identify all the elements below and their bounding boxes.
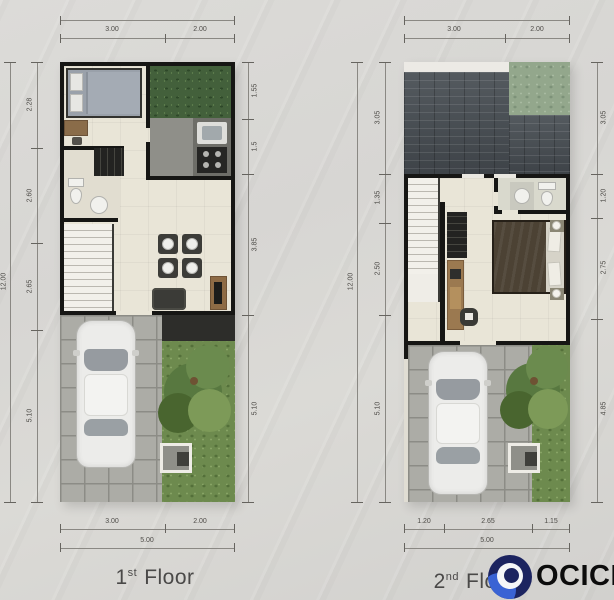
dim-line [404, 548, 570, 549]
dim-label: 12.00 [0, 265, 9, 299]
bed [66, 68, 142, 118]
dim-label: 2.00 [520, 25, 554, 34]
dim-line [10, 62, 11, 502]
dim-label: 5.10 [26, 399, 35, 433]
floorplan-image: 3.00 2.00 3.00 2.00 5.00 12.00 2.28 2.60… [0, 0, 614, 600]
garden-patch [150, 66, 231, 118]
bathroom-sink [90, 196, 108, 214]
dim-label: 2.00 [183, 25, 217, 34]
stair-rail [112, 224, 114, 311]
stairs [64, 224, 114, 311]
toilet-tank [538, 182, 556, 190]
dim-label: 5.10 [374, 392, 383, 426]
dim-line [60, 529, 235, 530]
caption-word: Floor [144, 566, 194, 589]
toilet-tank [68, 178, 84, 187]
tv-cabinet [210, 276, 227, 310]
desk-chair [72, 137, 82, 145]
dim-label: 2.00 [183, 517, 217, 526]
door-opening [502, 210, 518, 214]
dining-chair [182, 258, 202, 278]
desk-chair [460, 308, 478, 326]
dim-label: 12.00 [347, 265, 356, 299]
dim-label: 5.00 [470, 536, 504, 545]
dim-label: 2.65 [26, 270, 35, 304]
car [428, 351, 488, 495]
wardrobe [94, 148, 124, 176]
first-floor-plan [60, 62, 235, 502]
sofa [152, 288, 186, 310]
dim-label: 1.20 [407, 517, 441, 526]
dining-chair [158, 258, 178, 278]
dim-label: 3.85 [251, 228, 260, 262]
caption-suffix: nd [446, 571, 459, 583]
dim-label: 3.05 [600, 101, 609, 135]
second-floor-plan [404, 62, 570, 502]
dim-label: 1.5 [251, 130, 260, 164]
dim-label: 2.65 [471, 517, 505, 526]
stairs [408, 178, 440, 274]
wall [146, 142, 150, 180]
stove [197, 147, 227, 173]
window [462, 174, 484, 178]
dim-label: 3.00 [95, 25, 129, 34]
tree [158, 345, 231, 453]
nightstand [550, 220, 564, 232]
roof [404, 72, 509, 174]
dim-label: 1.20 [600, 179, 609, 213]
caption-suffix: st [128, 567, 138, 579]
dim-label: 4.85 [600, 392, 609, 426]
dim-label: 3.00 [437, 25, 471, 34]
dim-label: 3.00 [95, 517, 129, 526]
dim-label: 5.00 [130, 536, 164, 545]
dim-line [404, 529, 570, 530]
dim-line [60, 38, 235, 39]
dim-label: 2.28 [26, 88, 35, 122]
dim-label: 1.35 [374, 181, 383, 215]
wall [146, 66, 150, 128]
ocicio-logo-icon [488, 555, 532, 599]
dim-line [385, 62, 386, 502]
kitchen-sink [197, 122, 227, 144]
caption-number: 2 [434, 570, 446, 593]
roof [509, 115, 570, 174]
wall [440, 202, 445, 341]
dim-label: 3.05 [374, 101, 383, 135]
dining-chair [158, 234, 178, 254]
first-floor-caption: 1stFloor [100, 566, 210, 590]
dim-line [404, 20, 570, 21]
roof-edge [404, 62, 509, 72]
dim-line [248, 62, 249, 502]
dim-label: 2.75 [600, 251, 609, 285]
bathroom-sink [514, 188, 530, 204]
wall [64, 218, 118, 222]
tree [500, 347, 570, 452]
wall [494, 178, 498, 192]
dim-label: 1.55 [251, 74, 260, 108]
side-shadow [162, 315, 235, 341]
dining-chair [182, 234, 202, 254]
desk [64, 120, 88, 136]
dim-label: 1.15 [534, 517, 568, 526]
dim-label: 5.10 [251, 392, 260, 426]
watermark-text: OCICIO [536, 560, 614, 593]
wall [150, 176, 231, 180]
dim-line [404, 38, 570, 39]
dim-line [597, 62, 598, 502]
caption-number: 1 [115, 566, 127, 589]
nightstand [550, 288, 564, 300]
dim-line [357, 62, 358, 502]
dim-line [37, 62, 38, 502]
roof-garden [509, 62, 570, 115]
stair-landing [408, 274, 440, 302]
car [76, 320, 136, 468]
dim-line [60, 20, 235, 21]
dim-line [60, 548, 235, 549]
dim-label: 2.60 [26, 179, 35, 213]
dim-label: 2.50 [374, 252, 383, 286]
wardrobe [447, 212, 467, 258]
